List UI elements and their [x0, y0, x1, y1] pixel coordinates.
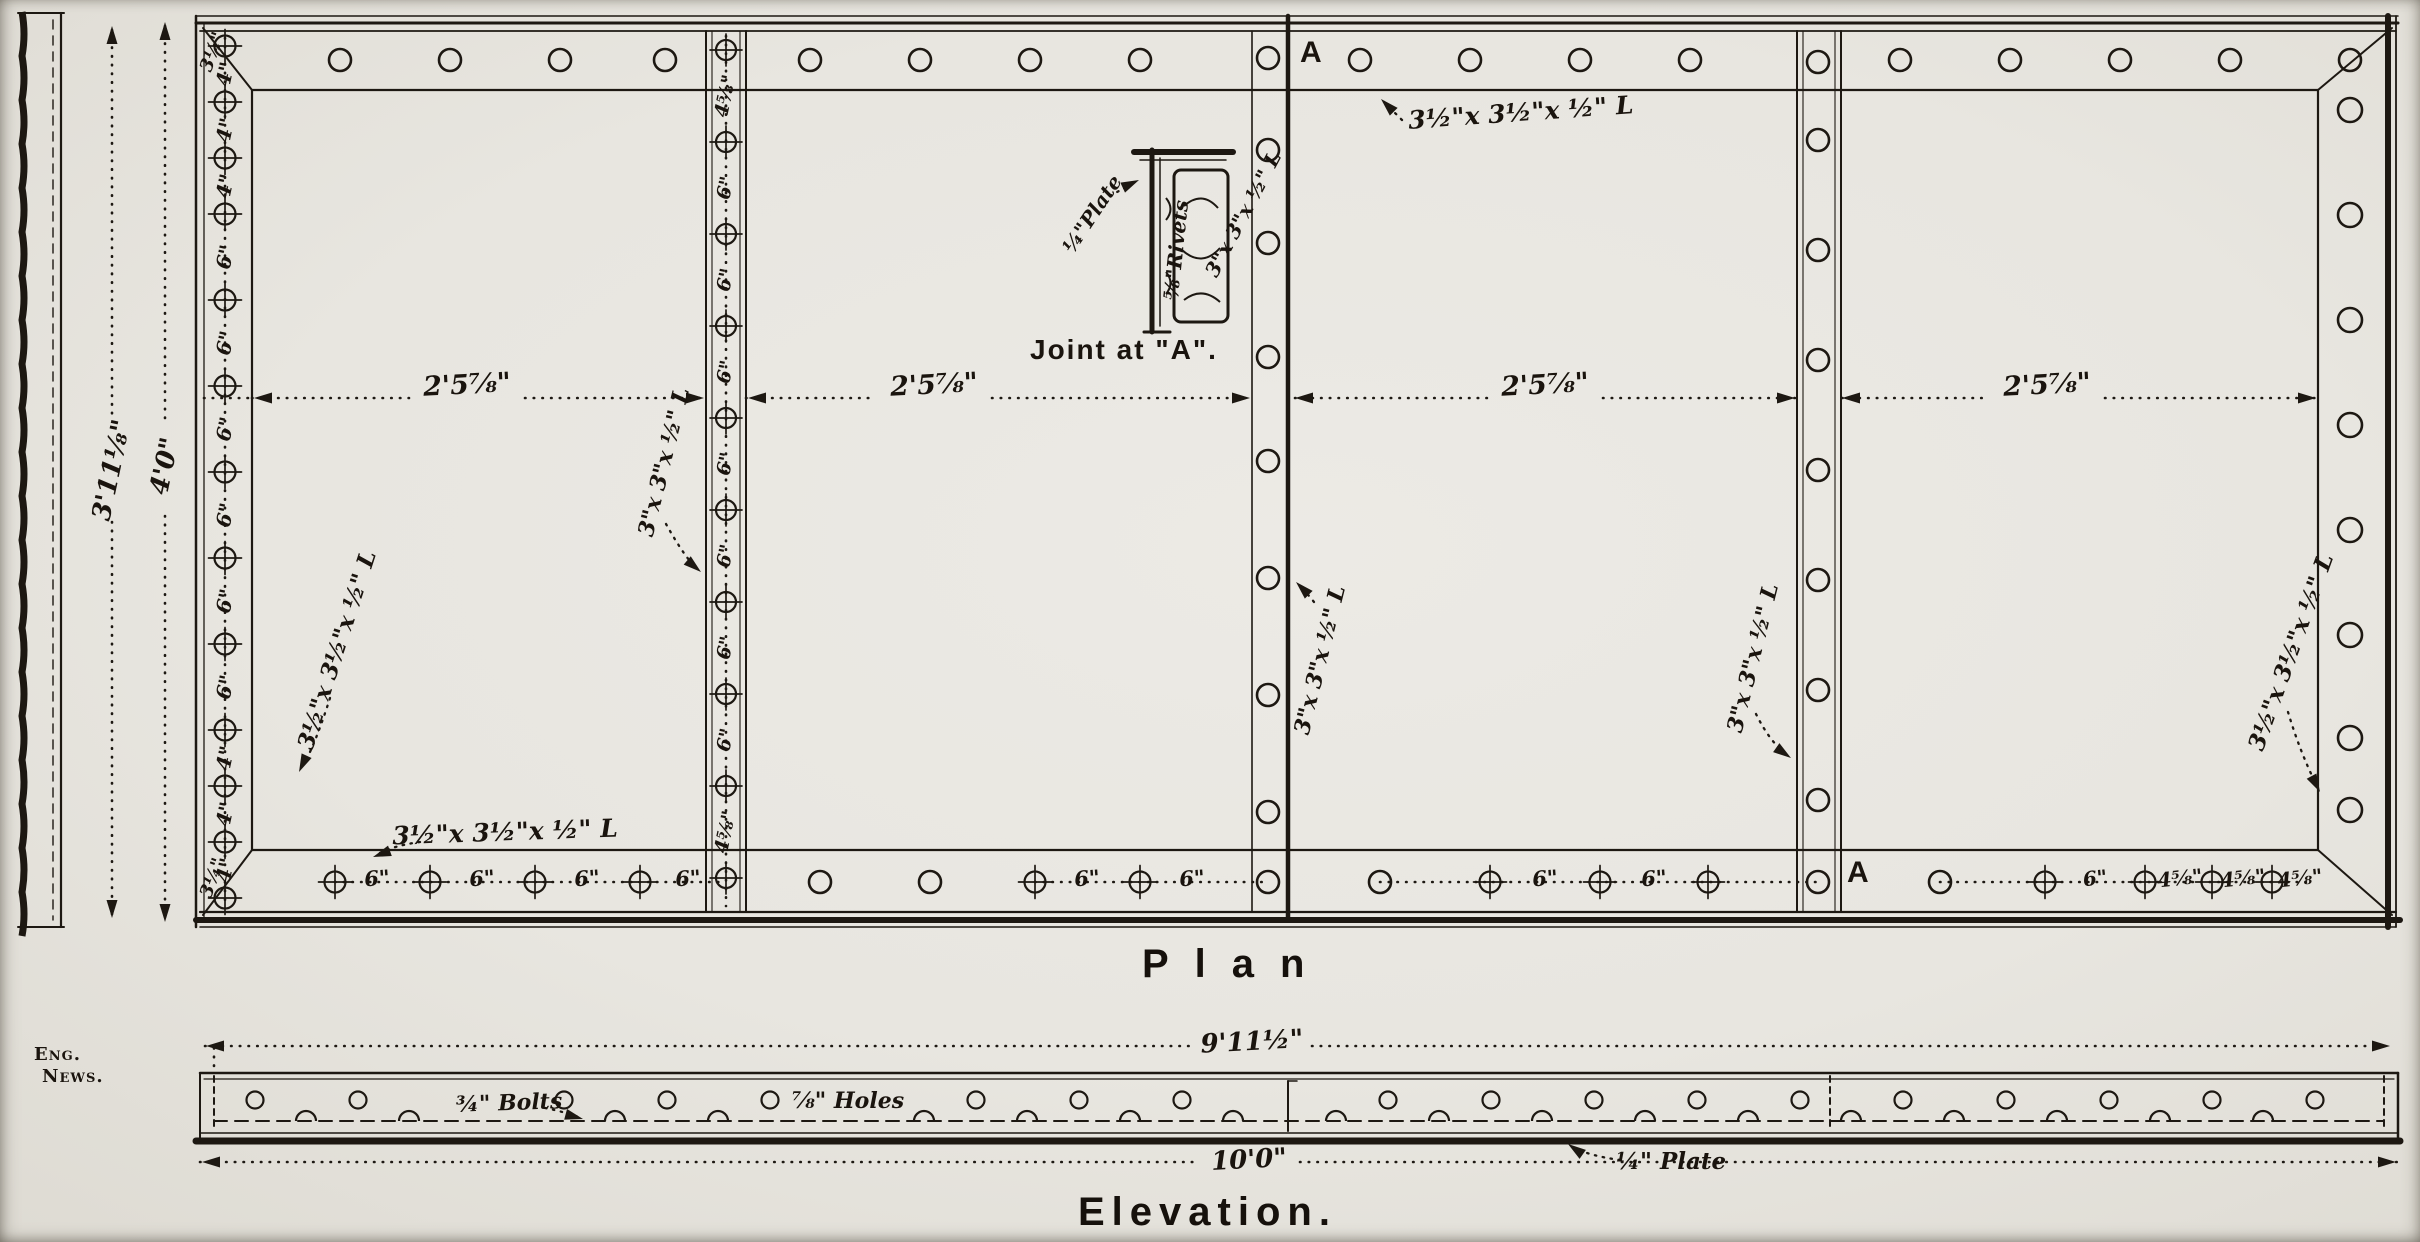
bolt-hole — [659, 1092, 676, 1109]
dimension-arrow — [748, 393, 766, 404]
spacing-label: 6" — [213, 243, 238, 271]
top-flange-hole — [2219, 49, 2241, 71]
arrowhead-icon — [1296, 582, 1313, 599]
elevation-top-dimension: 9'11½" — [1200, 1026, 1304, 1057]
spacing-label: 6" — [714, 635, 737, 662]
joint-detail-caption: Joint at "A". — [1030, 336, 1218, 364]
top-flange-hole — [1019, 49, 1041, 71]
bolts-label: ¾" Bolts — [456, 1090, 563, 1116]
spacing-label: 6" — [1179, 867, 1206, 890]
spacing-label: 6" — [213, 587, 238, 615]
bottom-angle-label: 3½"x 3½"x ½" L — [392, 816, 618, 849]
section-marker-bottom: A — [1847, 858, 1869, 888]
arrowhead-icon — [373, 846, 392, 857]
bolt-hole — [1792, 1092, 1809, 1109]
arrowhead-icon — [2372, 1041, 2390, 1052]
spacing-label: 4" — [213, 800, 238, 828]
spacing-label: 6" — [714, 543, 737, 570]
right-flange-hole — [2338, 308, 2362, 332]
joint-hole — [1257, 684, 1279, 706]
arrowhead-icon — [202, 1157, 220, 1168]
spacing-label: 6" — [213, 415, 238, 443]
spacing-label: 6" — [364, 867, 391, 890]
joint-hole — [1257, 232, 1279, 254]
spacing-label: 6" — [469, 867, 496, 890]
stiffener2-hole — [1807, 51, 1829, 73]
dimension-arrow — [1232, 393, 1250, 404]
bottom-flange-hole — [919, 871, 941, 893]
bottom-flange-hole — [809, 871, 831, 893]
bolt-head-arc — [1532, 1111, 1552, 1121]
top-flange-hole — [1459, 49, 1481, 71]
spacing-label: 4" — [213, 116, 238, 144]
right-flange-hole — [2338, 623, 2362, 647]
dimension-arrow — [254, 393, 272, 404]
bolt-head-arc — [2253, 1111, 2273, 1121]
elevation-title: Elevation. — [1078, 1192, 1337, 1232]
bolt-hole — [1380, 1092, 1397, 1109]
stiffener2-hole — [1807, 459, 1829, 481]
bolt-head-arc — [2150, 1111, 2170, 1121]
bolt-hole — [1689, 1092, 1706, 1109]
bolt-head-arc — [296, 1111, 316, 1121]
bolt-hole — [2101, 1092, 2118, 1109]
right-flange-hole — [2338, 203, 2362, 227]
spacing-label: 6" — [213, 673, 238, 701]
section-marker-top: A — [1300, 38, 1322, 68]
spacing-label: 6" — [714, 727, 737, 754]
stiffener2-hole — [1807, 569, 1829, 591]
credit-line-1: Eng. — [34, 1046, 81, 1064]
panel-width-dim-3: 2'5⅞" — [1500, 369, 1589, 401]
spacing-label: 4" — [213, 744, 238, 772]
elevation-plate-label: ¼" Plate — [1616, 1150, 1726, 1173]
top-flange-hole — [549, 49, 571, 71]
top-flange-hole — [329, 49, 351, 71]
bolt-hole — [2204, 1092, 2221, 1109]
spacing-label: 6" — [1641, 867, 1668, 890]
top-flange-hole — [2109, 49, 2131, 71]
arrowhead-icon — [107, 26, 118, 44]
spacing-label: 6" — [213, 501, 238, 529]
spacing-label: 6" — [714, 451, 737, 478]
top-flange-hole — [1679, 49, 1701, 71]
corner-miter — [2318, 850, 2392, 915]
spacing-label: 6" — [714, 359, 737, 386]
bolt-head-arc — [1326, 1111, 1346, 1121]
arrowhead-icon — [299, 753, 312, 772]
arrowhead-icon — [107, 900, 118, 918]
dimension-arrow — [1777, 393, 1795, 404]
bolt-head-arc — [1944, 1111, 1964, 1121]
top-flange-hole — [1349, 49, 1371, 71]
top-flange-hole — [1129, 49, 1151, 71]
bolt-head-arc — [605, 1111, 625, 1121]
bolt-head-arc — [1120, 1111, 1140, 1121]
bolt-head-arc — [914, 1111, 934, 1121]
spacing-label: 6" — [1074, 867, 1101, 890]
bolt-hole — [968, 1092, 985, 1109]
spacing-label: 4" — [213, 856, 238, 884]
spacing-label: 4⅝" — [2277, 866, 2324, 891]
bolt-hole — [1586, 1092, 1603, 1109]
arrowhead-icon — [684, 556, 701, 572]
plan-title: Plan — [1142, 944, 1330, 984]
bolt-head-arc — [2047, 1111, 2067, 1121]
top-flange-hole — [1999, 49, 2021, 71]
panel-width-dim-1: 2'5⅞" — [422, 369, 511, 401]
joint-hole — [1257, 450, 1279, 472]
bolt-hole — [1483, 1092, 1500, 1109]
bolt-head-arc — [1223, 1111, 1243, 1121]
bolt-hole — [2307, 1092, 2324, 1109]
top-flange-hole — [2339, 49, 2361, 71]
bolt-head-arc — [708, 1111, 728, 1121]
dimension-arrow — [1295, 393, 1313, 404]
stiffener2-hole — [1807, 679, 1829, 701]
top-flange-hole — [439, 49, 461, 71]
elevation-bottom-dimension: 10'0" — [1210, 1145, 1287, 1175]
arrowhead-icon — [160, 904, 171, 922]
holes-label: ⅞" Holes — [792, 1090, 904, 1112]
joint-hole — [1257, 346, 1279, 368]
stiffener2-hole — [1807, 349, 1829, 371]
right-flange-hole — [2338, 798, 2362, 822]
top-flange-hole — [1889, 49, 1911, 71]
corner-miter — [2318, 28, 2392, 90]
engineering-drawing-sheet: Eng. News. Plan Elevation. 2'5⅞" 2'5⅞" 2… — [0, 0, 2420, 1242]
top-flange-hole — [799, 49, 821, 71]
joint-hole — [1257, 567, 1279, 589]
spacing-label: 6" — [675, 867, 702, 890]
panel-width-dim-4: 2'5⅞" — [2002, 369, 2091, 401]
stiffener2-hole — [1807, 789, 1829, 811]
arrowhead-icon — [160, 22, 171, 40]
panel-width-dim-2: 2'5⅞" — [889, 369, 978, 401]
stiffener2-hole — [1807, 239, 1829, 261]
spacing-label: 4" — [213, 60, 238, 88]
bolt-head-arc — [1841, 1111, 1861, 1121]
joint-hole — [1257, 801, 1279, 823]
bolt-head-arc — [1738, 1111, 1758, 1121]
arrowhead-icon — [2378, 1157, 2396, 1168]
right-flange-hole — [2338, 413, 2362, 437]
spacing-label: 6" — [714, 175, 737, 202]
dimension-arrow — [2298, 393, 2316, 404]
arrowhead-icon — [564, 1109, 583, 1120]
arrowhead-icon — [206, 1041, 224, 1052]
bolt-hole — [247, 1092, 264, 1109]
bolt-hole — [1895, 1092, 1912, 1109]
bolt-hole — [1071, 1092, 1088, 1109]
credit-line-2: News. — [42, 1068, 104, 1086]
stiffener2-hole — [1807, 129, 1829, 151]
bolt-hole — [350, 1092, 367, 1109]
spacing-label: 6" — [213, 329, 238, 357]
right-angle-leader — [2288, 712, 2316, 784]
spacing-label: 6" — [1532, 867, 1559, 890]
bolt-head-arc — [1429, 1111, 1449, 1121]
spacing-label: 4" — [213, 172, 238, 200]
spacing-label: 6" — [574, 867, 601, 890]
right-flange-hole — [2338, 98, 2362, 122]
arrowhead-icon — [1773, 743, 1791, 758]
bolt-hole — [1998, 1092, 2015, 1109]
bolt-head-arc — [1017, 1111, 1037, 1121]
bolt-hole — [1174, 1092, 1191, 1109]
top-flange-hole — [654, 49, 676, 71]
right-flange-hole — [2338, 518, 2362, 542]
joint-hole — [1257, 47, 1279, 69]
spacing-label: 6" — [714, 267, 737, 294]
spacing-label: 4⅝" — [2157, 866, 2204, 891]
top-flange-hole — [1569, 49, 1591, 71]
top-flange-hole — [909, 49, 931, 71]
spacing-label: 6" — [2082, 867, 2108, 889]
spacing-label: 4⅝" — [2220, 866, 2267, 891]
dimension-arrow — [1842, 393, 1860, 404]
edge-view-rough-edge — [22, 12, 24, 936]
bolt-head-arc — [1635, 1111, 1655, 1121]
arrowhead-icon — [1568, 1144, 1586, 1159]
right-flange-hole — [2338, 726, 2362, 750]
bolt-head-arc — [399, 1111, 419, 1121]
bolt-hole — [762, 1092, 779, 1109]
